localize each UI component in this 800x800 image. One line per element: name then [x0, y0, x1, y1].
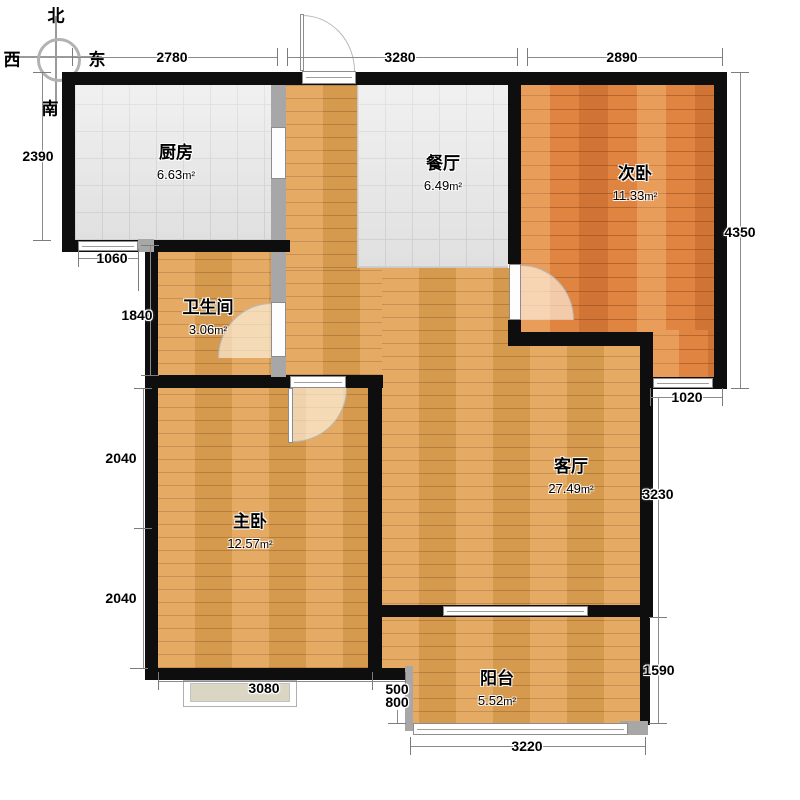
bedroom2-floor-ext — [650, 330, 714, 378]
room-area: 11.33m² — [613, 187, 657, 206]
room-name: 阳台 — [478, 667, 516, 692]
room-area: 6.49m² — [424, 177, 462, 196]
room-name: 餐厅 — [424, 152, 462, 177]
hallway-floor — [286, 85, 357, 268]
compass-west: 西 — [4, 46, 21, 71]
compass-north: 北 — [48, 2, 65, 27]
wall-kitchen-left — [62, 72, 75, 252]
bathroom-label: 卫生间 3.06m² — [183, 296, 234, 340]
wall-master-right — [368, 375, 382, 680]
wall-bedroom2-bottom — [508, 332, 653, 346]
balcony-label: 阳台 5.52m² — [478, 667, 516, 711]
room-area: 27.49m² — [548, 480, 593, 499]
entrance-door-leaf — [300, 14, 304, 71]
master-label: 主卧 12.57m² — [227, 510, 272, 554]
master-door-leaf — [288, 388, 293, 443]
room-area: 5.52m² — [478, 692, 516, 711]
dim-left-5: 2040 — [105, 590, 136, 606]
dim-bottom-1: 3080 — [248, 680, 279, 696]
room-area: 3.06m² — [183, 321, 234, 340]
balcony-sliding-window — [443, 606, 588, 616]
wall-bedroom2-left-upper — [508, 72, 521, 264]
room-name: 卫生间 — [183, 296, 234, 321]
room-name: 客厅 — [548, 455, 593, 480]
dim-left-1: 2390 — [22, 148, 53, 164]
partition-segment — [271, 357, 286, 377]
room-area: 6.63m² — [157, 166, 195, 185]
dim-top-3: 2890 — [606, 49, 637, 65]
partition-segment — [271, 85, 286, 127]
wall-bathroom-master — [145, 375, 383, 388]
room-name: 厨房 — [157, 141, 195, 166]
compass-south: 南 — [42, 95, 59, 120]
dining-label: 餐厅 6.49m² — [424, 152, 462, 196]
dim-left-2: 1060 — [96, 250, 127, 266]
room-name: 次卧 — [613, 162, 657, 187]
floor-plan: 北 西 东 南 2780 3280 2890 2390 1060 1840 20… — [0, 0, 800, 800]
dim-top-2: 3280 — [384, 49, 415, 65]
dim-bottom-3: 800 — [385, 694, 408, 710]
living-label: 客厅 27.49m² — [548, 455, 593, 499]
balcony-bottom-window — [413, 723, 628, 735]
bedroom2-window — [653, 378, 713, 388]
wall-outer-top — [62, 72, 727, 85]
room-name: 主卧 — [227, 510, 272, 535]
kitchen-label: 厨房 6.63m² — [157, 141, 195, 185]
wall-master-bottom — [145, 668, 383, 680]
bedroom2-door-leaf — [509, 264, 521, 320]
master-door-threshold — [290, 376, 346, 388]
partition-segment — [271, 179, 286, 240]
dim-top-1: 2780 — [156, 49, 187, 65]
entrance-threshold — [302, 71, 356, 84]
dim-right-4: 1590 — [643, 662, 674, 678]
bathroom-door-leaf — [271, 302, 286, 357]
dim-right-3: 3230 — [642, 486, 673, 502]
room-area: 12.57m² — [227, 535, 272, 554]
dim-right-1: 4350 — [724, 224, 755, 240]
compass-east: 东 — [89, 46, 106, 71]
wall-outer-left — [145, 240, 158, 680]
wall-balcony-stub — [368, 668, 410, 680]
partition-segment — [271, 252, 286, 302]
dim-left-4: 2040 — [105, 450, 136, 466]
dim-left-3: 1840 — [121, 307, 152, 323]
dim-bottom-4: 3220 — [511, 738, 542, 754]
entrance-door-arc — [302, 15, 355, 71]
bedroom2-label: 次卧 11.33m² — [613, 162, 657, 206]
kitchen-sliding-door — [271, 127, 286, 179]
wall-living-right — [640, 332, 653, 617]
dim-right-2: 1020 — [671, 389, 702, 405]
